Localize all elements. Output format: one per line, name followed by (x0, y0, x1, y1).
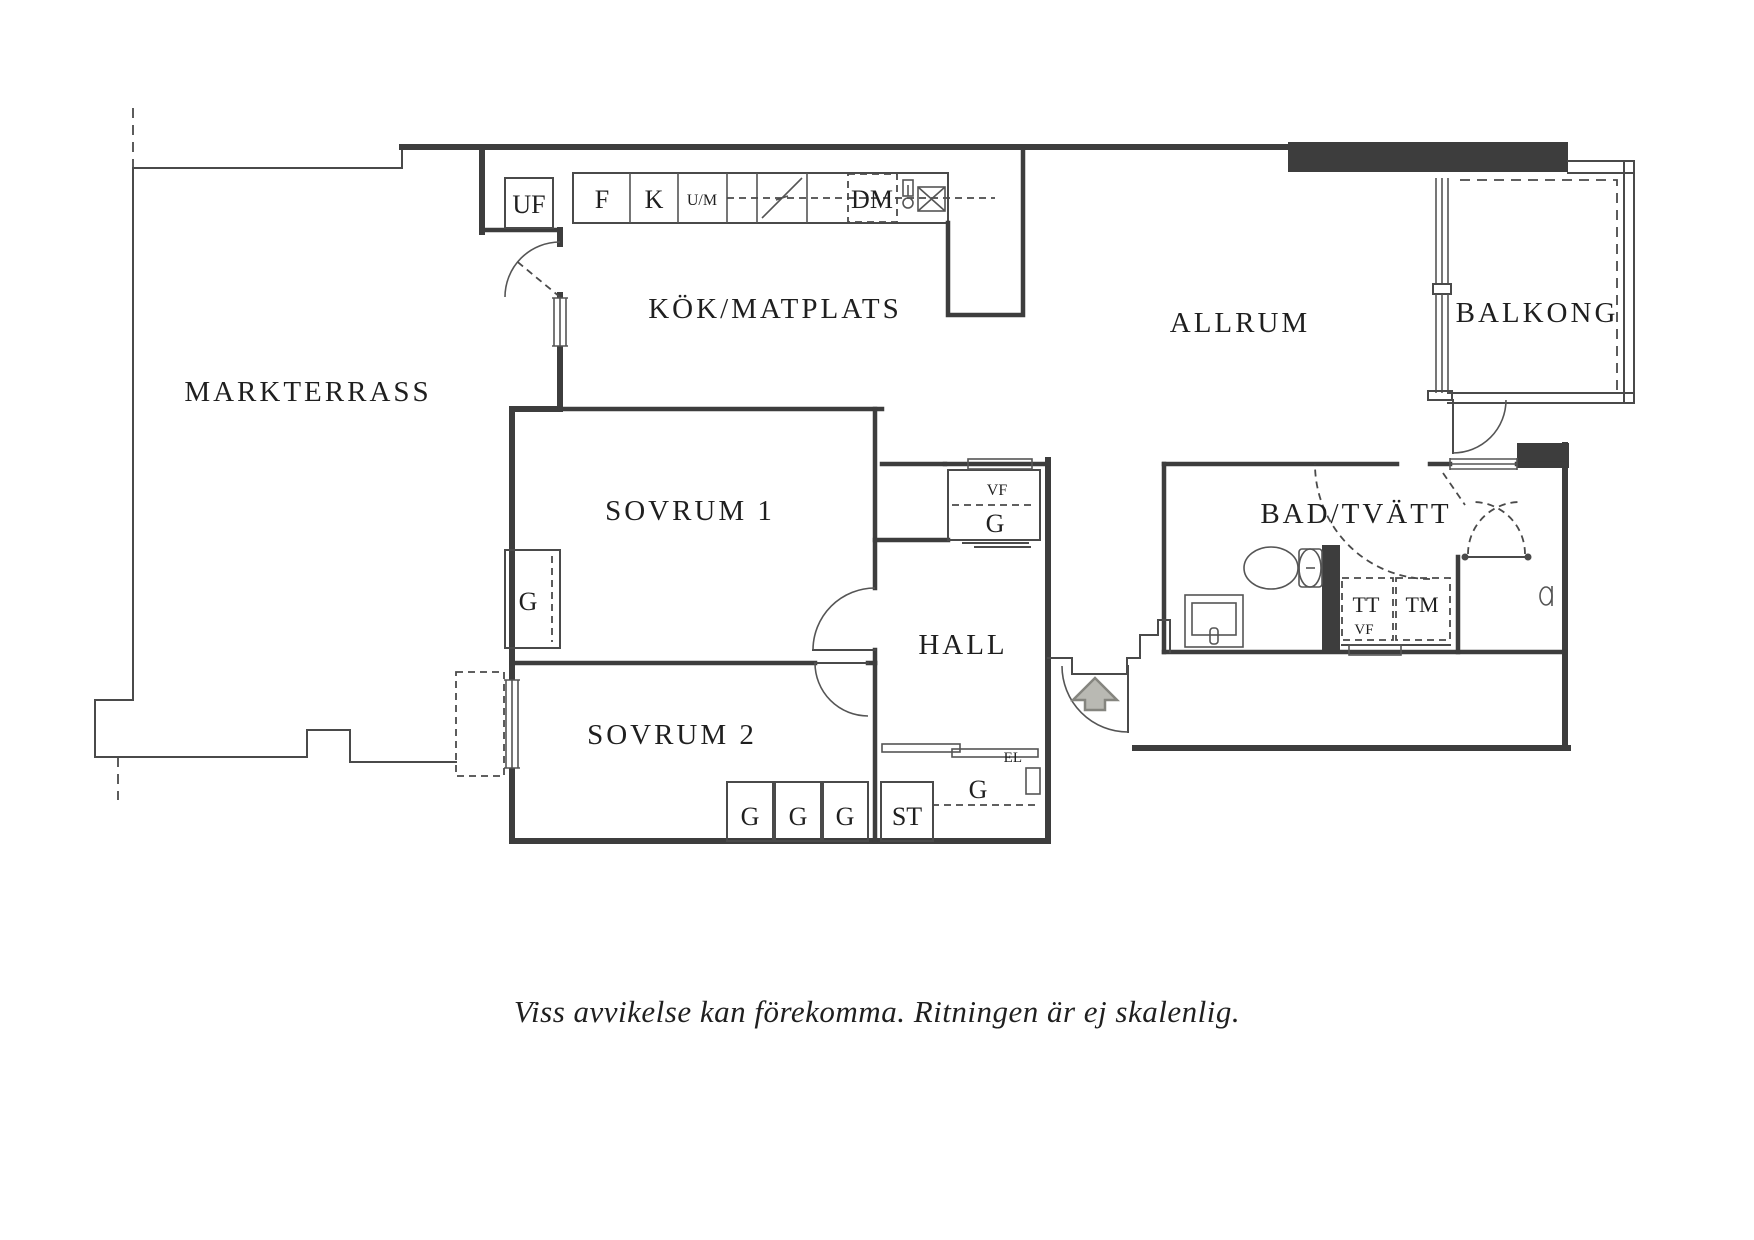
uf-label: UF (512, 190, 545, 219)
room-label-sovrum2: SOVRUM 2 (587, 719, 757, 751)
bathroom-window (1450, 458, 1517, 470)
french-balcony (456, 672, 504, 776)
wardrobe-row: G G G ST (727, 782, 933, 841)
hall-wardrobe: G EL (882, 744, 1040, 805)
floor-plan-page: UF DM F K U/M (0, 0, 1754, 1240)
electrical-cabinet (1026, 768, 1040, 794)
room-label-bad-tvatt: BAD/TVÄTT (1260, 498, 1451, 530)
uf-closet: UF (505, 178, 553, 228)
shaft-wall (948, 150, 1023, 315)
sink-icon (903, 180, 945, 211)
balcony-railing (1448, 161, 1634, 403)
sovrum1-door (813, 588, 875, 650)
room-label-allrum: ALLRUM (1170, 307, 1310, 339)
el-label: EL (1004, 750, 1022, 766)
g-label: G (986, 509, 1005, 538)
room-label-sovrum1: SOVRUM 1 (605, 495, 775, 527)
wardrobe-label: G (969, 775, 988, 804)
toilet-icon (1244, 547, 1322, 589)
entrance-arrow-icon (1073, 678, 1117, 710)
vf-small-label: VF (1354, 622, 1373, 638)
bath-sink-icon (1185, 595, 1243, 647)
sovrum2-door (815, 663, 868, 716)
freezer-label: K (645, 185, 664, 214)
hall-closet-vf-g: VF G (945, 459, 1048, 547)
wardrobe-label: G (741, 802, 760, 831)
terrace-outline (95, 108, 456, 800)
fridge-label: F (595, 185, 609, 214)
entry (1048, 620, 1170, 732)
dryer-label: TT (1353, 592, 1380, 617)
kitchen-counter: DM F K U/M (573, 173, 995, 223)
balcony-door (1428, 391, 1506, 453)
toilet-stub-wall (1322, 545, 1340, 652)
dm-label: DM (851, 185, 893, 214)
kitchen-window (551, 298, 569, 346)
wardrobe-label: G (789, 802, 808, 831)
interior-walls (512, 409, 1565, 841)
laundry-units: TT TM VF (1342, 578, 1450, 655)
vf-label: VF (987, 482, 1008, 499)
washer-label: TM (1406, 592, 1439, 617)
oven-micro-label: U/M (687, 192, 717, 209)
room-label-kok-matplats: KÖK/MATPLATS (648, 293, 902, 325)
g-label: G (519, 587, 538, 616)
sovrum2-window (456, 672, 521, 776)
disclaimer-caption: Viss avvikelse kan förekomma. Ritningen … (514, 994, 1240, 1029)
room-labels: MARKTERRASS KÖK/MATPLATS ALLRUM BALKONG … (184, 293, 1618, 751)
room-label-balkong: BALKONG (1456, 297, 1619, 329)
exterior-walls (402, 142, 1569, 841)
floor-plan-drawing: UF DM F K U/M (0, 0, 1754, 1240)
room-label-hall: HALL (918, 629, 1007, 661)
wardrobe-label: G (836, 802, 855, 831)
cleaning-closet-label: ST (892, 802, 922, 831)
balcony-header-wall (1288, 142, 1568, 172)
balcony-window-wall (1433, 178, 1451, 393)
room-label-markterrass: MARKTERRASS (184, 376, 431, 408)
terrace-door (505, 242, 560, 297)
